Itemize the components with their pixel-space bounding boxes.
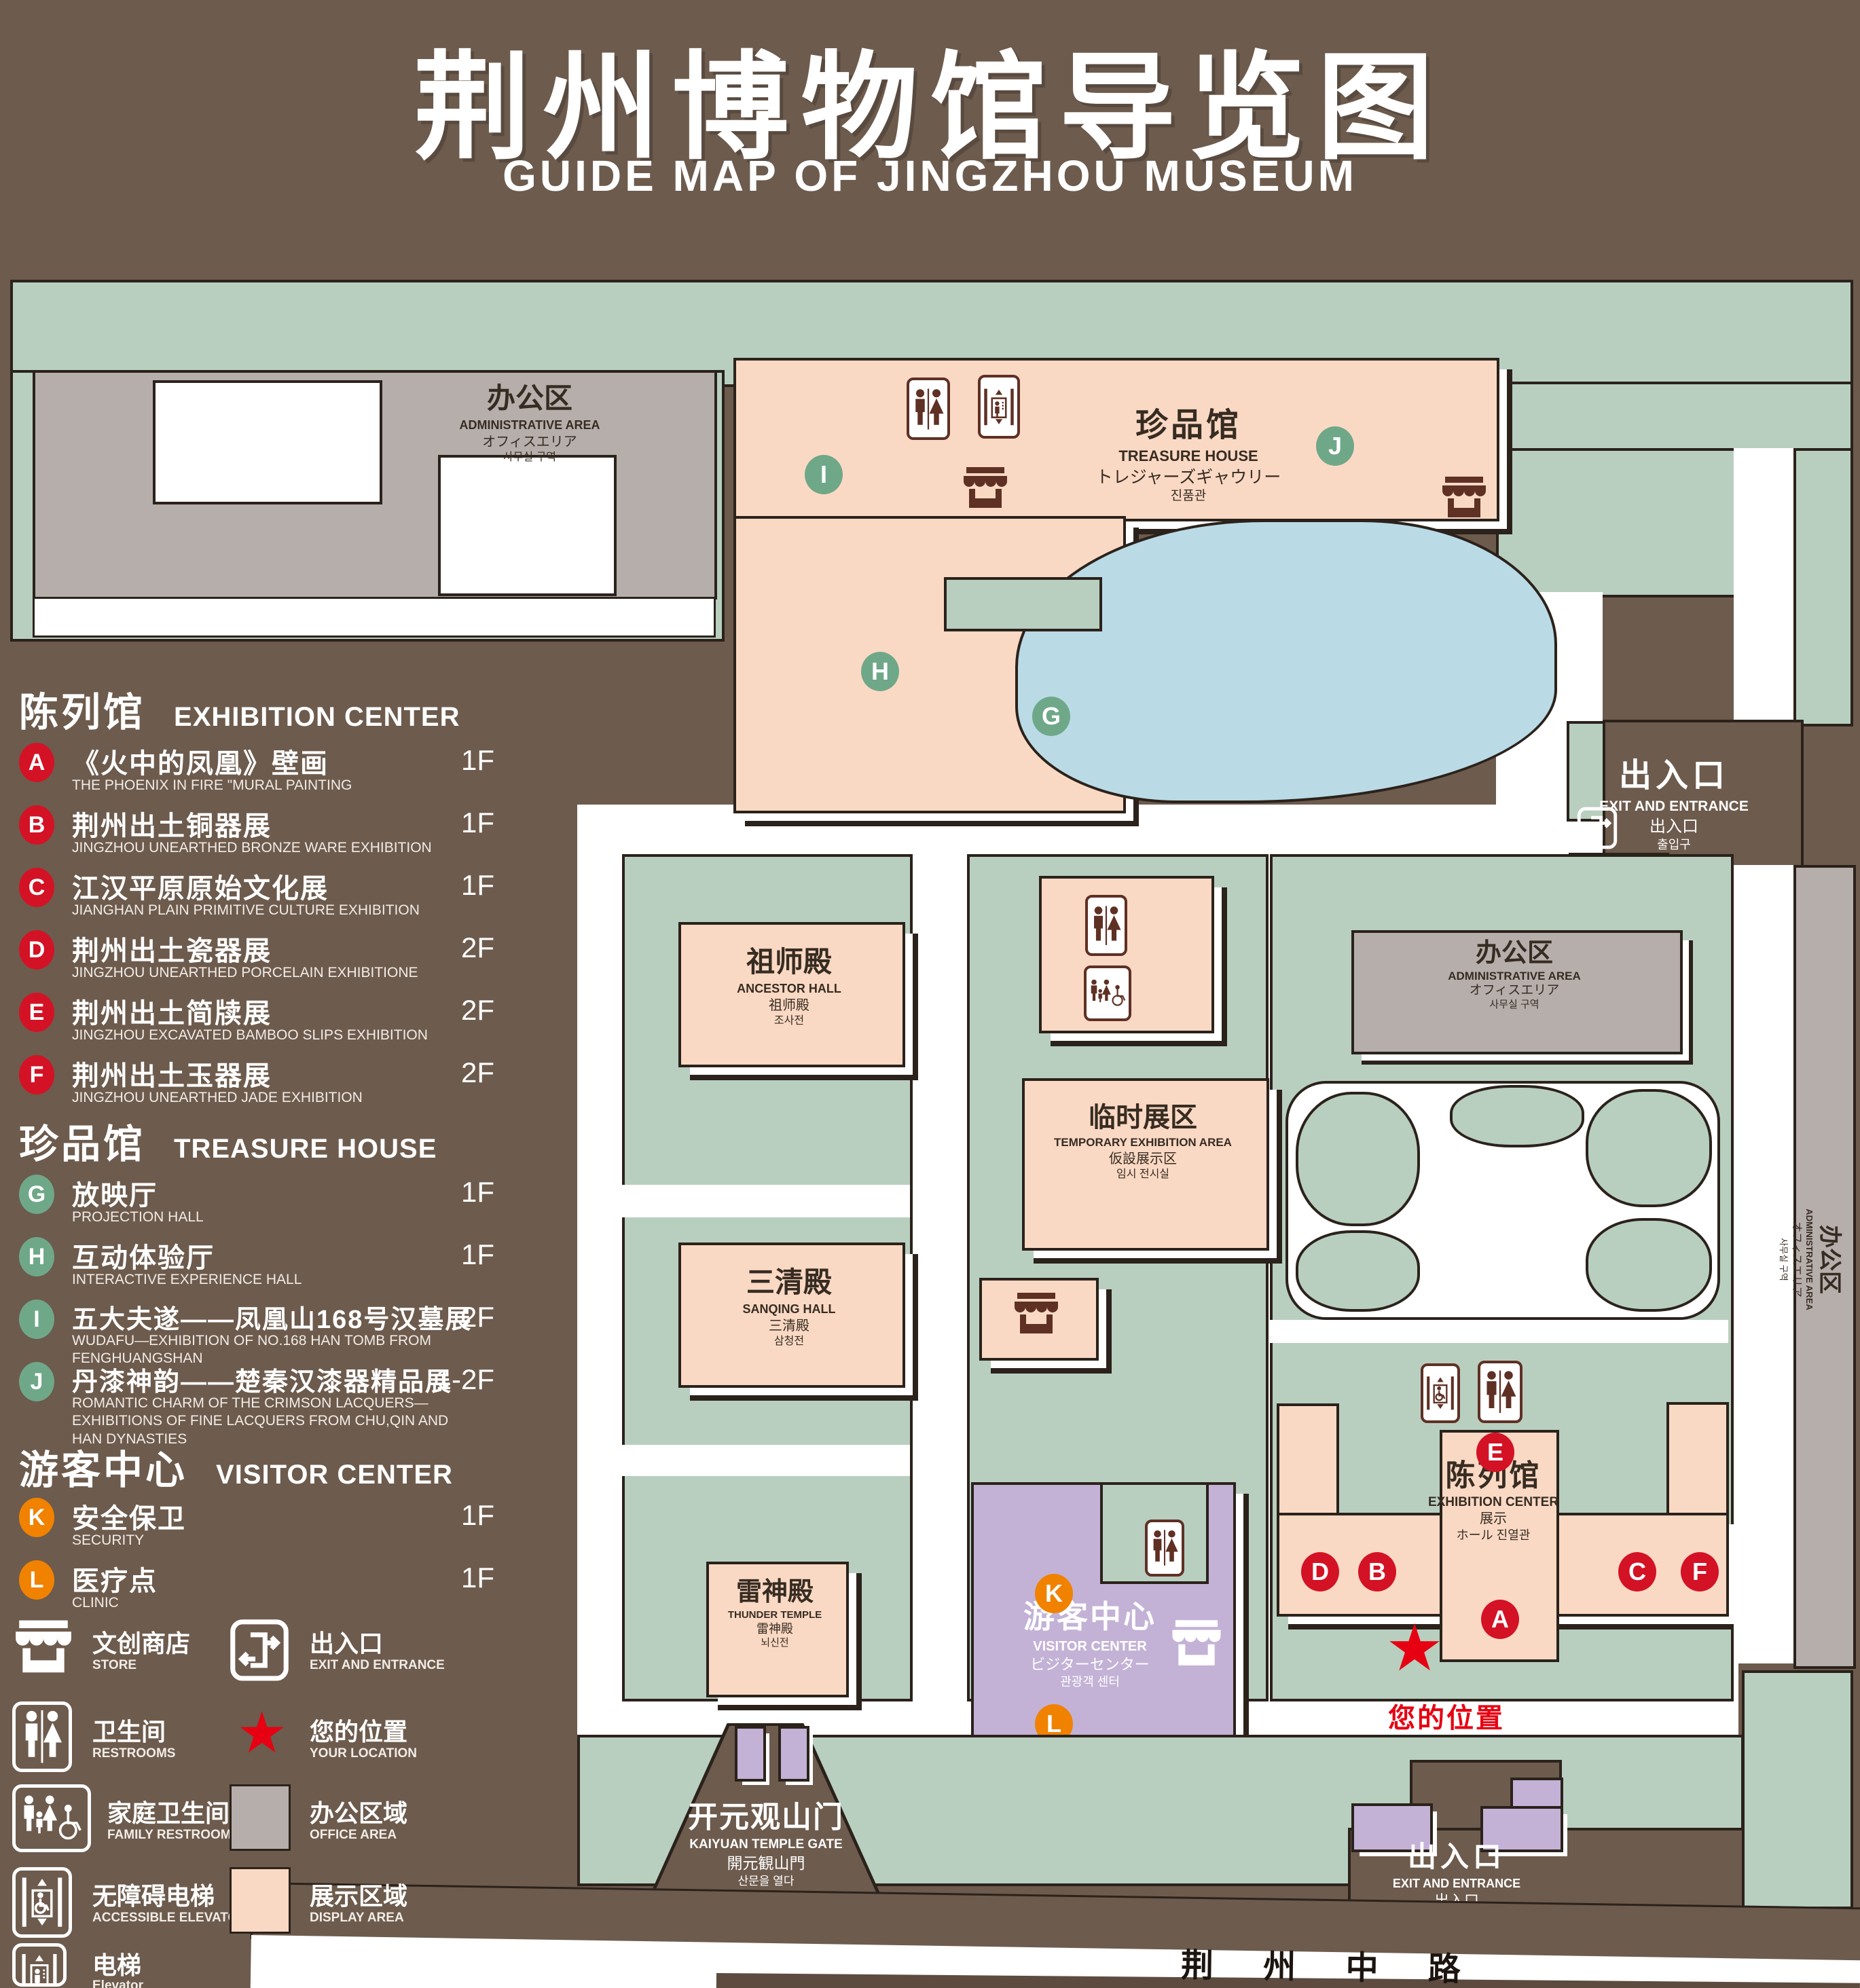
symbol-display-en: DISPLAY AREA	[310, 1911, 404, 1926]
legend-c-floor: 1F	[413, 869, 494, 902]
store-icon	[12, 1619, 75, 1677]
ancestor-hall-ja: 祖师殿	[685, 997, 893, 1014]
badge-i: I	[19, 1300, 54, 1339]
restrooms-icon	[1145, 1520, 1184, 1577]
badge-g: G	[1032, 697, 1070, 736]
visitor-center-ko: 관광객 센터	[978, 1674, 1202, 1690]
badge-c: C	[1618, 1552, 1656, 1591]
legend-item-b: B 荆州出土铜器展 JINGZHOU UNEARTHED BRONZE WARE…	[19, 804, 494, 865]
restrooms-icon	[1085, 895, 1127, 956]
ne-green-2	[1496, 448, 1739, 597]
lake-dock-green	[944, 577, 1102, 631]
legend-f-floor: 2F	[413, 1056, 494, 1089]
legend-sec2-zh: 珍品馆	[19, 1122, 145, 1166]
admin-mid-label: 办公区 ADMINISTRATIVE AREA オフィスエリア 사무실 구역	[1358, 938, 1671, 1011]
garden-island-se	[1586, 1218, 1712, 1312]
your-location-label: 您的位置	[1351, 1696, 1542, 1735]
badge-j: J	[1316, 426, 1354, 466]
gate-ja: 開元観山門	[651, 1854, 881, 1874]
symbol-store-zh: 文创商店	[92, 1624, 190, 1659]
admin-nw-zh: 办公区	[380, 380, 679, 418]
admin-east-ja: オフィスエリア	[1789, 1113, 1803, 1405]
badge-b: B	[1358, 1552, 1396, 1591]
store-icon	[1169, 1619, 1224, 1673]
legend-item-j: J 丹漆神韵——楚秦汉漆器精品展 ROMANTIC CHARM OF THE C…	[19, 1361, 494, 1441]
sanqing-hall-ko: 삼청전	[685, 1335, 893, 1349]
gate-door-west	[735, 1726, 766, 1782]
thunder-temple-zh: 雷神殿	[710, 1577, 840, 1609]
road-label: 荆 州 中 路	[1127, 1938, 1535, 1988]
temple-cross-path-2	[619, 1445, 910, 1476]
legend-sec2-en: TREASURE HOUSE	[174, 1134, 437, 1164]
treasure-house-ja: トレジャーズギャウリー	[1046, 466, 1331, 489]
legend-c-en: JIANGHAN PLAIN PRIMITIVE CULTURE EXHIBIT…	[72, 902, 479, 919]
legend-section-treasure-house: 珍品馆TREASURE HOUSE	[19, 1112, 437, 1169]
legend-f-zh: 荆州出土玉器展	[72, 1054, 272, 1093]
symbol-accessible-en: ACCESSIBLE ELEVATOR	[92, 1911, 247, 1926]
exhibition-center-sub2: ホール 진열관	[1381, 1528, 1605, 1543]
badge-c: C	[19, 868, 54, 907]
treasure-house-label: 珍品馆 TREASURE HOUSE トレジャーズギャウリー 진품관	[1046, 405, 1331, 505]
temp-exhibition-zh: 临时展区	[1029, 1100, 1257, 1135]
legend-section-exhibition-center: 陈列馆EXHIBITION CENTER	[19, 680, 460, 737]
nw-courtyard-a	[153, 380, 382, 504]
legend-k-floor: 1F	[413, 1499, 494, 1532]
legend-b-floor: 1F	[413, 807, 494, 839]
symbol-elevator-zh: 电梯	[92, 1946, 141, 1981]
symbol-elevator-en: Elevator	[92, 1978, 143, 1988]
legend-h-zh: 互动体验厅	[72, 1236, 215, 1275]
legend-a-en: THE PHOENIX IN FIRE "MURAL PAINTING	[72, 777, 479, 794]
legend-e-en: JINGZHOU EXCAVATED BAMBOO SLIPS EXHIBITI…	[72, 1027, 479, 1044]
family-restrooms-icon	[12, 1784, 91, 1852]
store-icon	[1012, 1291, 1061, 1340]
legend-item-h: H 互动体验厅 INTERACTIVE EXPERIENCE HALL 1F	[19, 1236, 494, 1297]
display-area-swatch	[230, 1867, 291, 1934]
sanqing-hall-ja: 三清殿	[685, 1317, 893, 1335]
gate-ko: 산문을 열다	[651, 1874, 881, 1889]
symbol-exit-en: EXIT AND ENTRANCE	[310, 1658, 445, 1673]
elevator-icon	[978, 375, 1020, 439]
temp-exhibition-label: 临时展区 TEMPORARY EXHIBITION AREA 仮設展示区 임시 …	[1029, 1100, 1257, 1182]
legend-j-zh: 丹漆神韵——楚秦汉漆器精品展	[72, 1361, 452, 1398]
gate-zh: 开元观山门	[651, 1798, 881, 1837]
admin-nw-ko: 사무실 구역	[380, 451, 679, 465]
admin-east-label: 办公区 ADMINISTRATIVE AREA オフィスエリア 사무실 구역	[1777, 1113, 1844, 1405]
garden-island-sw	[1296, 1230, 1420, 1312]
sanqing-hall-label: 三清殿 SANQING HALL 三清殿 삼청전	[685, 1264, 893, 1349]
admin-mid-zh: 办公区	[1358, 938, 1671, 970]
legend-b-zh: 荆州出土铜器展	[72, 804, 272, 843]
admin-east-zh: 办公区	[1815, 1113, 1844, 1405]
thunder-temple-ja: 雷神殿	[710, 1621, 840, 1637]
gate-door-east	[778, 1726, 809, 1782]
temp-exhibition-en: TEMPORARY EXHIBITION AREA	[1029, 1135, 1257, 1150]
legend-e-floor: 2F	[413, 994, 494, 1027]
store-icon	[1440, 475, 1489, 524]
symbol-display-zh: 展示区域	[310, 1877, 407, 1912]
admin-mid-ja: オフィスエリア	[1358, 983, 1671, 999]
exhibition-center-sub1: 展示	[1381, 1511, 1605, 1528]
legend-item-f: F 荆州出土玉器展 JINGZHOU UNEARTHED JADE EXHIBI…	[19, 1054, 494, 1115]
badge-f: F	[19, 1055, 54, 1094]
legend-item-g: G 放映厅 PROJECTION HALL 1F	[19, 1173, 494, 1234]
exit-icon	[230, 1619, 289, 1681]
thunder-temple-label: 雷神殿 THUNDER TEMPLE 雷神殿 뇌신전	[710, 1577, 840, 1650]
location-star-icon: ★	[236, 1704, 287, 1761]
garden-south-path	[1270, 1320, 1728, 1343]
badge-k: K	[19, 1498, 54, 1537]
badge-a: A	[19, 743, 54, 782]
ne-exit-zh: 出入口	[1562, 755, 1786, 797]
symbol-restrooms-en: RESTROOMS	[92, 1746, 175, 1761]
badge-a: A	[1481, 1600, 1519, 1639]
legend-f-en: JINGZHOU UNEARTHED JADE EXHIBITION	[72, 1089, 479, 1107]
symbol-accessible-zh: 无障碍电梯	[92, 1877, 215, 1912]
family-restrooms-icon	[1084, 965, 1131, 1021]
legend-d-en: JINGZHOU UNEARTHED PORCELAIN EXHIBITIONE	[72, 964, 479, 982]
restrooms-icon	[907, 378, 950, 440]
lake	[1015, 519, 1557, 803]
accessible-elevator-icon	[1421, 1363, 1460, 1423]
legend-k-en: SECURITY	[72, 1532, 479, 1549]
badge-g: G	[19, 1175, 54, 1214]
temp-exhibition-ko: 임시 전시실	[1029, 1168, 1257, 1182]
symbol-store-en: STORE	[92, 1658, 136, 1673]
east-road-upper	[1734, 448, 1793, 721]
legend-item-d: D 荆州出土瓷器展 JINGZHOU UNEARTHED PORCELAIN E…	[19, 929, 494, 990]
legend-item-a: A 《火中的凤凰》壁画 THE PHOENIX IN FIRE "MURAL P…	[19, 741, 494, 803]
badge-h: H	[19, 1237, 54, 1276]
symbol-office-en: OFFICE AREA	[310, 1828, 397, 1843]
temple-cross-path-1	[619, 1185, 910, 1217]
gate-en: KAIYUAN TEMPLE GATE	[651, 1837, 881, 1854]
legend-sec1-zh: 陈列馆	[19, 691, 145, 735]
badge-e: E	[1476, 1433, 1514, 1472]
legend-item-k: K 安全保卫 SECURITY 1F	[19, 1496, 494, 1558]
guide-map-poster: 荆州博物馆导览图 GUIDE MAP OF JINGZHOU MUSEUM 办公…	[0, 0, 1860, 1988]
legend-item-e: E 荆州出土简牍展 JINGZHOU EXCAVATED BAMBOO SLIP…	[19, 991, 494, 1052]
badge-e: E	[19, 993, 54, 1032]
badge-f: F	[1681, 1552, 1719, 1591]
ne-green-1	[1496, 382, 1853, 454]
garden-island-n	[1450, 1085, 1584, 1147]
elevator-icon	[12, 1943, 67, 1987]
symbol-exit-zh: 出入口	[310, 1624, 383, 1659]
ne-green-3	[1793, 448, 1853, 726]
admin-nw-en: ADMINISTRATIVE AREA	[380, 418, 679, 433]
badge-h: H	[861, 652, 899, 691]
se-exit-en: EXIT AND ENTRANCE	[1351, 1876, 1562, 1892]
legend-j-floor: 1-2F	[413, 1363, 494, 1396]
treasure-house-zh: 珍品馆	[1046, 405, 1331, 447]
treasure-house-en: TREASURE HOUSE	[1046, 447, 1331, 466]
legend-sec1-en: EXHIBITION CENTER	[174, 702, 460, 732]
badge-d: D	[19, 930, 54, 970]
legend-g-zh: 放映厅	[72, 1173, 158, 1213]
nw-courtyard-b	[438, 455, 617, 596]
badge-d: D	[1301, 1552, 1339, 1591]
legend-g-floor: 1F	[413, 1176, 494, 1209]
symbol-location-en: YOUR LOCATION	[310, 1746, 417, 1761]
sanqing-hall-en: SANQING HALL	[685, 1302, 893, 1317]
ancestor-hall-label: 祖师殿 ANCESTOR HALL 祖师殿 조사전	[685, 944, 893, 1029]
visitor-center-ja: ビジターセンター	[978, 1655, 1202, 1675]
store-icon	[961, 466, 1010, 515]
accessible-elevator-icon	[12, 1867, 72, 1938]
office-area-swatch	[230, 1784, 291, 1851]
admin-nw-ja: オフィスエリア	[380, 433, 679, 451]
page-subtitle: GUIDE MAP OF JINGZHOU MUSEUM	[0, 151, 1860, 201]
exit-icon	[1577, 807, 1618, 850]
legend-sec3-zh: 游客中心	[19, 1448, 187, 1492]
garden-island-ne	[1586, 1089, 1712, 1207]
symbol-family-en: FAMILY RESTROOMS	[107, 1828, 240, 1843]
ancestor-hall-zh: 祖师殿	[685, 944, 893, 981]
legend-l-zh: 医疗点	[72, 1559, 158, 1598]
legend-d-zh: 荆州出土瓷器展	[72, 929, 272, 968]
admin-east-ko: 사무실 구역	[1777, 1113, 1789, 1405]
restrooms-icon	[12, 1701, 72, 1772]
symbol-family-zh: 家庭卫生间	[107, 1794, 230, 1829]
symbol-location-zh: 您的位置	[310, 1712, 407, 1748]
thunder-temple-en: THUNDER TEMPLE	[710, 1609, 840, 1622]
badge-b: B	[19, 805, 54, 845]
visitor-center-label: 游客中心 VISITOR CENTER ビジターセンター 관광객 센터	[978, 1597, 1202, 1691]
symbol-restrooms-zh: 卫生间	[92, 1712, 166, 1748]
visitor-center-en: VISITOR CENTER	[978, 1638, 1202, 1655]
legend-a-zh: 《火中的凤凰》壁画	[72, 741, 329, 781]
legend-l-en: CLINIC	[72, 1594, 479, 1612]
badge-l: L	[19, 1560, 54, 1600]
temp-exhibition-ja: 仮設展示区	[1029, 1150, 1257, 1168]
garden-island-nw	[1296, 1092, 1420, 1226]
nw-path	[33, 597, 716, 638]
admin-nw-label: 办公区 ADMINISTRATIVE AREA オフィスエリア 사무실 구역	[380, 380, 679, 465]
sanqing-hall-zh: 三清殿	[685, 1264, 893, 1302]
legend-section-visitor-center: 游客中心VISITOR CENTER	[19, 1438, 453, 1495]
location-star-icon: ★	[1385, 1616, 1444, 1681]
legend-g-en: PROJECTION HALL	[72, 1209, 479, 1226]
ancestor-hall-ko: 조사전	[685, 1014, 893, 1029]
legend-i-zh: 五大夫遂——凤凰山168号汉墓展	[72, 1298, 472, 1336]
visitor-center-zh: 游客中心	[978, 1597, 1202, 1638]
legend-h-en: INTERACTIVE EXPERIENCE HALL	[72, 1271, 479, 1289]
exhibition-center-en: EXHIBITION CENTER	[1381, 1494, 1605, 1511]
legend-item-c: C 江汉平原原始文化展 JIANGHAN PLAIN PRIMITIVE CUL…	[19, 866, 494, 927]
ancestor-hall-en: ANCESTOR HALL	[685, 981, 893, 997]
thunder-temple-ko: 뇌신전	[710, 1637, 840, 1650]
legend-d-floor: 2F	[413, 932, 494, 964]
legend-h-floor: 1F	[413, 1238, 494, 1271]
se-corner-green	[1742, 1670, 1853, 1909]
legend-i-floor: 2F	[413, 1301, 494, 1333]
restrooms-icon	[1478, 1361, 1522, 1423]
symbol-office-zh: 办公区域	[310, 1794, 407, 1829]
badge-j: J	[19, 1362, 54, 1401]
legend-k-zh: 安全保卫	[72, 1496, 186, 1536]
legend-a-floor: 1F	[413, 744, 494, 777]
admin-mid-en: ADMINISTRATIVE AREA	[1358, 970, 1671, 983]
legend-item-i: I 五大夫遂——凤凰山168号汉墓展 WUDAFU—EXHIBITION OF …	[19, 1298, 494, 1359]
legend-c-zh: 江汉平原原始文化展	[72, 866, 329, 906]
legend-l-floor: 1F	[413, 1562, 494, 1594]
legend-item-l: L 医疗点 CLINIC 1F	[19, 1559, 494, 1620]
admin-mid-ko: 사무실 구역	[1358, 999, 1671, 1011]
gate-label: 开元观山门 KAIYUAN TEMPLE GATE 開元観山門 산문을 열다	[651, 1798, 881, 1889]
se-exit-zh: 出入口	[1351, 1839, 1562, 1876]
legend-sec3-en: VISITOR CENTER	[216, 1460, 453, 1490]
treasure-house-ko: 진품관	[1046, 488, 1331, 505]
badge-k: K	[1035, 1574, 1073, 1613]
admin-east-en: ADMINISTRATIVE AREA	[1803, 1113, 1815, 1405]
badge-i: I	[805, 455, 843, 494]
legend-b-en: JINGZHOU UNEARTHED BRONZE WARE EXHIBITIO…	[72, 839, 479, 857]
legend-e-zh: 荆州出土简牍展	[72, 991, 272, 1031]
